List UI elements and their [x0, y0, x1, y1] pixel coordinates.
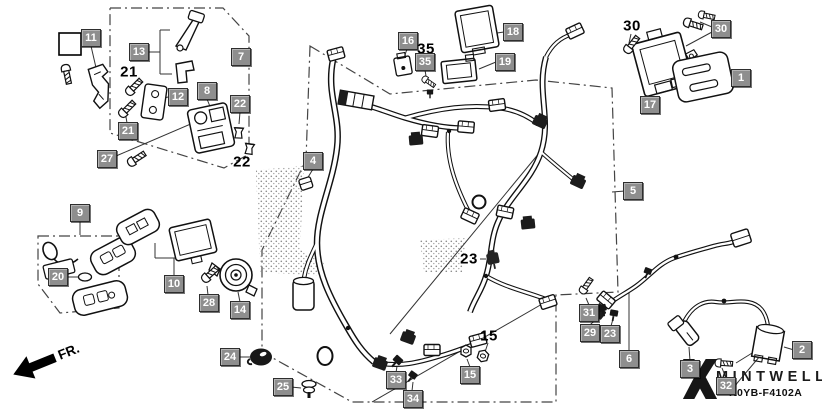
- part-callout-text-23: 23: [460, 251, 478, 268]
- parts-diagram-canvas: MINTWELL K0YB-F4102A FR. 111372112822212…: [0, 0, 822, 411]
- part-callout-box-2[interactable]: 2: [792, 341, 812, 359]
- part-callout-box-28[interactable]: 28: [199, 294, 219, 312]
- part-callout-box-22[interactable]: 22: [230, 95, 250, 113]
- part-callout-box-13[interactable]: 13: [129, 43, 149, 61]
- part-callout-text-22: 22: [233, 154, 251, 171]
- part-callout-box-1[interactable]: 1: [731, 69, 751, 87]
- part-callout-box-29[interactable]: 29: [580, 324, 600, 342]
- part-callout-box-31[interactable]: 31: [579, 304, 599, 322]
- part-callout-box-14[interactable]: 14: [230, 301, 250, 319]
- part-callout-box-7[interactable]: 7: [231, 48, 251, 66]
- part-callout-text-21: 21: [120, 64, 138, 81]
- part-callout-box-3[interactable]: 3: [680, 360, 700, 378]
- part-callout-box-18[interactable]: 18: [503, 23, 523, 41]
- part-callout-box-8[interactable]: 8: [197, 82, 217, 100]
- part-callout-box-17[interactable]: 17: [640, 96, 660, 114]
- part-callout-box-23[interactable]: 23: [600, 325, 620, 343]
- part-callout-box-24[interactable]: 24: [220, 348, 240, 366]
- part-callout-text-30: 30: [623, 18, 641, 35]
- labels-layer: 1113721128222127229201028144163535181930…: [0, 0, 822, 411]
- part-callout-box-30[interactable]: 30: [711, 20, 731, 38]
- part-callout-box-4[interactable]: 4: [303, 152, 323, 170]
- part-callout-box-32[interactable]: 32: [716, 377, 736, 395]
- part-callout-box-25[interactable]: 25: [273, 378, 293, 396]
- part-callout-box-12[interactable]: 12: [168, 88, 188, 106]
- part-callout-box-20[interactable]: 20: [48, 268, 68, 286]
- part-callout-box-21[interactable]: 21: [118, 122, 138, 140]
- part-callout-box-34[interactable]: 34: [403, 390, 423, 408]
- part-callout-box-5[interactable]: 5: [623, 182, 643, 200]
- part-callout-box-33[interactable]: 33: [386, 371, 406, 389]
- part-callout-box-6[interactable]: 6: [619, 350, 639, 368]
- part-callout-text-15: 15: [480, 328, 498, 345]
- part-callout-box-9[interactable]: 9: [70, 204, 90, 222]
- part-callout-box-10[interactable]: 10: [164, 275, 184, 293]
- part-callout-box-19[interactable]: 19: [495, 53, 515, 71]
- part-callout-box-27[interactable]: 27: [97, 150, 117, 168]
- part-callout-box-16[interactable]: 16: [398, 32, 418, 50]
- part-callout-box-15[interactable]: 15: [460, 366, 480, 384]
- part-callout-box-35[interactable]: 35: [415, 53, 435, 71]
- part-callout-box-11[interactable]: 11: [81, 29, 101, 47]
